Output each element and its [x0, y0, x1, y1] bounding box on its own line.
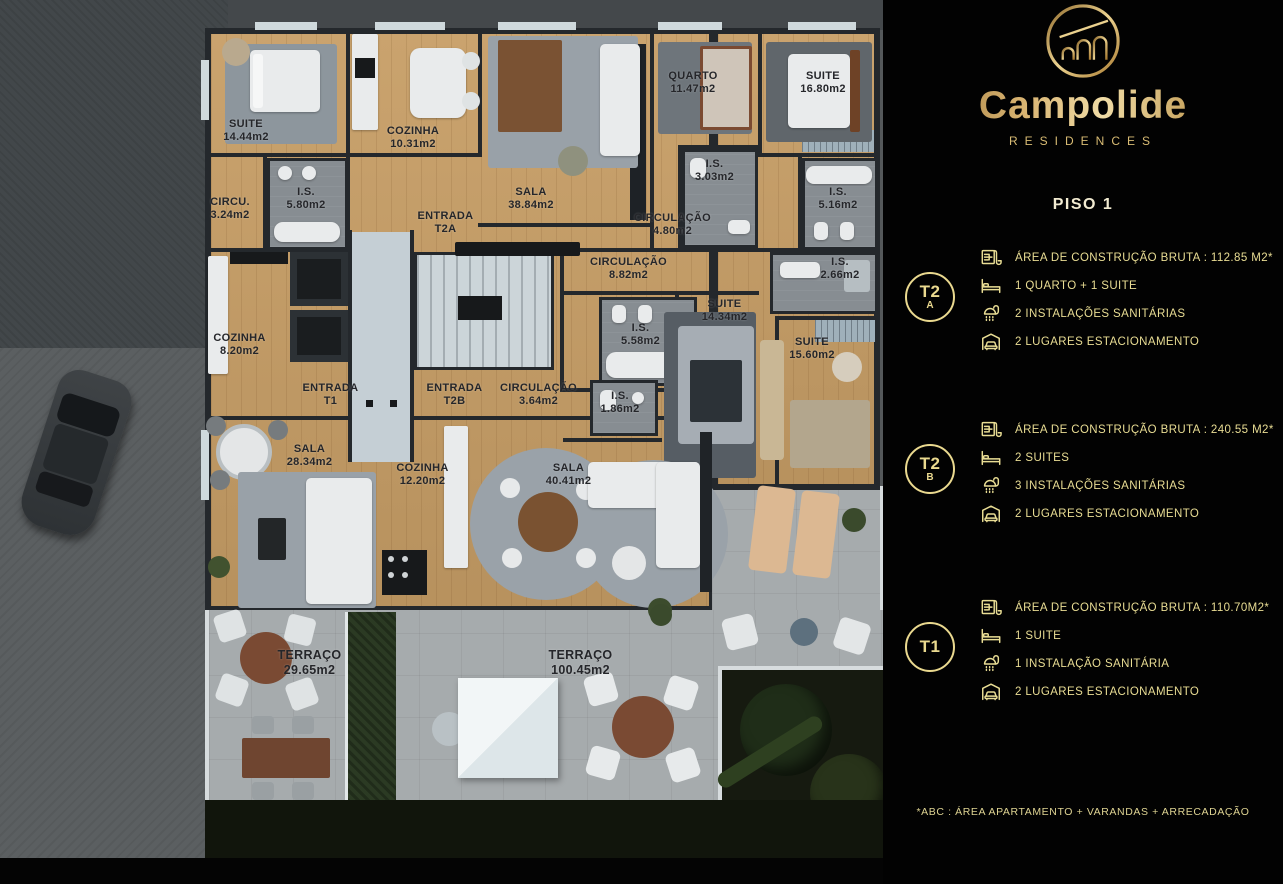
pergola-canopy — [458, 678, 558, 778]
sofa — [600, 44, 640, 156]
bed-pillows — [253, 54, 263, 108]
outdoor-dining-table — [242, 738, 330, 778]
kitchen-counter-dark — [230, 252, 288, 264]
room-label-quarto-1147: QUARTO11.47m2 — [638, 70, 748, 96]
room-label-cozinha-1031: COZINHA10.31m2 — [358, 125, 468, 151]
toilet — [814, 222, 828, 240]
spec-parking: 2 LUGARES ESTACIONAMENTO — [979, 500, 1274, 528]
window — [498, 22, 576, 30]
unit-specs: ÁREA DE CONSTRUÇÃO BRUTA : 240.55 M2* 2 … — [979, 416, 1274, 528]
armchair — [222, 38, 250, 66]
bathtub — [806, 166, 872, 184]
bottom-black-bar — [0, 858, 883, 884]
room-label-circulacao-364: CIRCULAÇÃO3.64m2 — [486, 382, 591, 408]
wall — [563, 291, 759, 295]
unit-specs: ÁREA DE CONSTRUÇÃO BRUTA : 110.70M2* 1 S… — [979, 594, 1269, 706]
planter-hedge — [345, 612, 396, 802]
shower-icon — [979, 303, 1003, 325]
brand-logo-icon — [1044, 2, 1122, 80]
spec-parking: 2 LUGARES ESTACIONAMENTO — [979, 678, 1269, 706]
room-label-entrada-t2a: ENTRADAT2A — [398, 210, 493, 236]
window — [375, 22, 445, 30]
window — [201, 60, 209, 120]
plant — [650, 604, 672, 626]
room-label-is-580: I.S.5.80m2 — [266, 186, 346, 212]
stool — [462, 52, 480, 70]
stove-burner — [388, 556, 394, 562]
room-label-circu-324: CIRCU.3.24m2 — [190, 196, 270, 222]
car-icon — [979, 681, 1003, 703]
room-label-suite-1680: SUITE16.80m2 — [768, 70, 878, 96]
room-label-cozinha-820: COZINHA8.20m2 — [192, 332, 287, 358]
media-shelf — [700, 432, 712, 592]
sideboard — [455, 242, 580, 256]
spec-area: ÁREA DE CONSTRUÇÃO BRUTA : 240.55 M2* — [979, 416, 1274, 444]
elevator-shaft — [290, 310, 348, 362]
terrace-chair — [252, 782, 274, 800]
badge-main: T1 — [920, 638, 941, 655]
spec-parking: 2 LUGARES ESTACIONAMENTO — [979, 328, 1273, 356]
spec-area: ÁREA DE CONSTRUÇÃO BRUTA : 112.85 M2* — [979, 244, 1273, 272]
page-title: PISO 1 — [883, 196, 1283, 214]
armchair — [558, 146, 588, 176]
kitchen-counter — [352, 34, 378, 130]
room-label-sala-3884: SALA38.84m2 — [476, 186, 586, 212]
stove-burner — [388, 572, 394, 578]
window — [201, 430, 209, 500]
spec-bathrooms: 3 INSTALAÇÕES SANITÁRIAS — [979, 472, 1274, 500]
toilet — [638, 305, 652, 323]
plant — [208, 556, 230, 578]
brand-subtitle: RESIDENCES — [883, 134, 1283, 148]
room-label-sala-2834: SALA28.34m2 — [262, 443, 357, 469]
shower-icon — [979, 475, 1003, 497]
sink — [302, 166, 316, 180]
spec-bathrooms: 2 INSTALAÇÕES SANITÁRIAS — [979, 300, 1273, 328]
spec-bedrooms: 1 SUITE — [979, 622, 1269, 650]
room-label-suite-1444: SUITE14.44m2 — [196, 118, 296, 144]
toilet — [840, 222, 854, 240]
bed-throw — [690, 360, 742, 422]
shower-icon — [979, 653, 1003, 675]
stool — [462, 92, 480, 110]
dining-table — [498, 40, 562, 132]
room-label-entrada-t2b: ENTRADAT2B — [412, 382, 497, 408]
spec-bedrooms: 2 SUITES — [979, 444, 1274, 472]
car-icon — [979, 331, 1003, 353]
wall — [346, 153, 482, 157]
room-label-is-516: I.S.5.16m2 — [798, 186, 878, 212]
ground-shadow — [205, 800, 883, 860]
brand-name: Campolide — [883, 84, 1283, 128]
lobby-corridor — [352, 232, 410, 462]
room-label-is-303: I.S.3.03m2 — [672, 158, 757, 184]
window — [788, 22, 856, 30]
sink — [728, 220, 750, 234]
wall — [205, 153, 350, 157]
badge-main: T2 — [920, 283, 941, 300]
unit-badge-t1: T1 — [905, 622, 955, 672]
toilet — [612, 305, 626, 323]
room-label-terraco-2965: TERRAÇO29.65m2 — [252, 648, 367, 678]
bed-icon — [979, 275, 1003, 297]
footnote: *ABC : ÁREA APARTAMENTO + VARANDAS + ARR… — [883, 806, 1283, 818]
cooktop — [355, 58, 375, 78]
badge-sub: B — [926, 473, 933, 483]
floorplan-icon — [979, 597, 1003, 619]
floorplan-scene: SUITE14.44m2 COZINHA10.31m2 SALA38.84m2 … — [0, 0, 883, 884]
chair — [576, 548, 596, 568]
sofa-corner — [656, 462, 700, 568]
stove-burner — [402, 556, 408, 562]
spec-bedrooms: 1 QUARTO + 1 SUITE — [979, 272, 1273, 300]
brand-logo — [883, 2, 1283, 85]
window — [255, 22, 317, 30]
elevator-shaft — [290, 252, 348, 306]
lobby-marker — [390, 400, 397, 407]
room-label-entrada-t1: ENTRADAT1 — [288, 382, 373, 408]
terrace-chair — [292, 782, 314, 800]
room-label-is-266: I.S.2.66m2 — [800, 256, 880, 282]
unit-t1: T1 ÁREA DE CONSTRUÇÃO BRUTA : 110.70M2* … — [883, 586, 1283, 716]
round-dining-table — [518, 492, 578, 552]
bathtub — [274, 222, 340, 242]
spec-bathrooms: 1 INSTALAÇÃO SANITÁRIA — [979, 650, 1269, 678]
stove-burner — [402, 572, 408, 578]
wall — [758, 28, 762, 156]
room-label-is-558: I.S.5.58m2 — [598, 322, 683, 348]
room-label-suite-1434: SUITE14.34m2 — [672, 298, 777, 324]
coffee-table — [258, 518, 286, 560]
unit-badge-t2b: T2 B — [905, 444, 955, 494]
badge-main: T2 — [920, 455, 941, 472]
terrace-chair — [252, 716, 274, 734]
floorplan-icon — [979, 419, 1003, 441]
wall — [478, 28, 482, 156]
room-label-is-186: I.S.1.86m2 — [580, 390, 660, 416]
rug — [790, 400, 870, 468]
floorplan-icon — [979, 247, 1003, 269]
room-label-terraco-10045: TERRAÇO100.45m2 — [518, 648, 643, 678]
floorplan-marketing-page: SUITE14.44m2 COZINHA10.31m2 SALA38.84m2 … — [0, 0, 1283, 884]
sofa — [306, 478, 372, 604]
info-panel: Campolide RESIDENCES PISO 1 T2 A ÁREA DE… — [883, 0, 1283, 884]
room-label-suite-1560: SUITE15.60m2 — [762, 336, 862, 362]
wall — [563, 438, 662, 442]
stair-well — [458, 296, 502, 320]
terrace-chair — [292, 716, 314, 734]
car-icon — [979, 503, 1003, 525]
bed-icon — [979, 447, 1003, 469]
kitchen-counter — [444, 426, 468, 568]
wall — [560, 248, 564, 392]
chair — [206, 416, 226, 436]
spec-area: ÁREA DE CONSTRUÇÃO BRUTA : 110.70M2* — [979, 594, 1269, 622]
room-label-circulacao-480: CIRCULAÇÃO4.80m2 — [620, 212, 725, 238]
wall — [758, 153, 880, 157]
bed-icon — [979, 625, 1003, 647]
street-upper — [0, 0, 228, 348]
unit-specs: ÁREA DE CONSTRUÇÃO BRUTA : 112.85 M2* 1 … — [979, 244, 1273, 356]
plant — [842, 508, 866, 532]
unit-t2a: T2 A ÁREA DE CONSTRUÇÃO BRUTA : 112.85 M… — [883, 236, 1283, 366]
window — [658, 22, 722, 30]
armchair — [612, 546, 646, 580]
unit-t2b: T2 B ÁREA DE CONSTRUÇÃO BRUTA : 240.55 M… — [883, 408, 1283, 538]
sink — [278, 166, 292, 180]
badge-sub: A — [926, 301, 933, 311]
unit-badge-t2a: T2 A — [905, 272, 955, 322]
room-label-cozinha-1220: COZINHA12.20m2 — [370, 462, 475, 488]
chair — [210, 470, 230, 490]
round-table — [612, 696, 674, 758]
kitchen-island — [410, 48, 466, 118]
room-label-circulacao-882: CIRCULAÇÃO8.82m2 — [576, 256, 681, 282]
chair — [268, 420, 288, 440]
room-label-sala-4041: SALA40.41m2 — [516, 462, 621, 488]
side-table — [790, 618, 818, 646]
chair — [502, 548, 522, 568]
